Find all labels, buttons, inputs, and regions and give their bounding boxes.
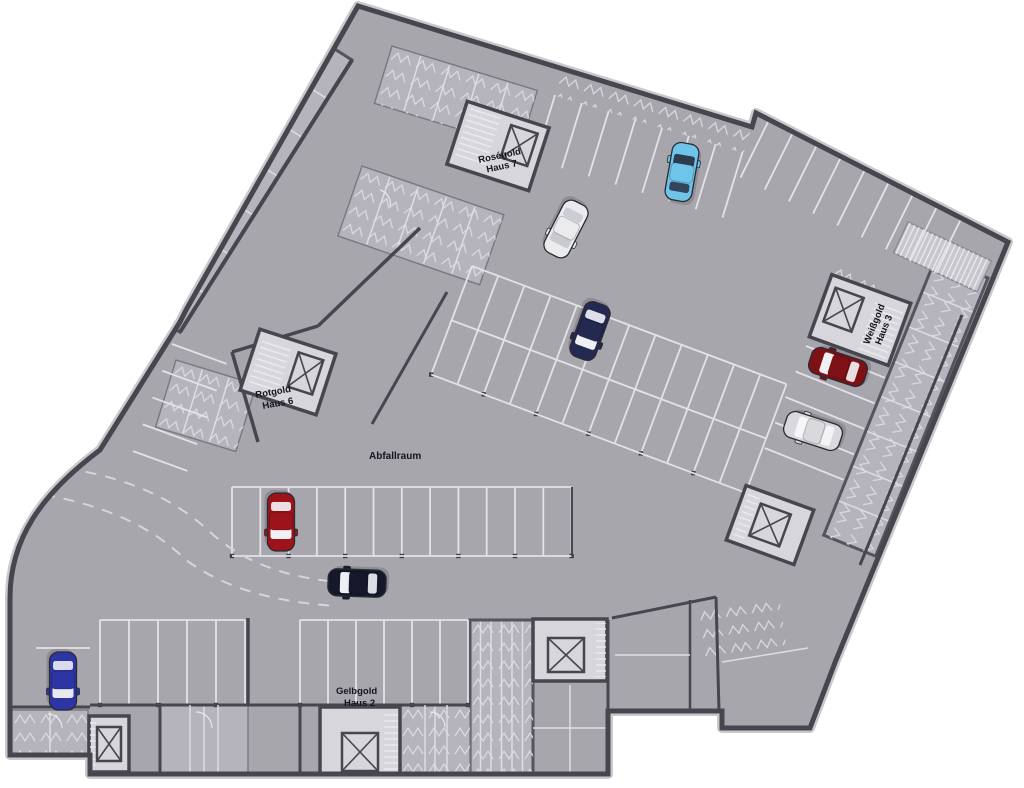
- elevator-icon: [97, 727, 121, 761]
- stairwell-core: [89, 716, 129, 772]
- stairwell-core-gelbgold: [320, 707, 400, 777]
- black-car: [327, 565, 389, 600]
- blue-car: [47, 649, 80, 710]
- storage-area: [12, 710, 88, 754]
- stairs-icon: [384, 712, 398, 774]
- label-abfallraum: Abfallraum: [369, 451, 421, 462]
- storage-area: [470, 620, 533, 775]
- red-car: [265, 490, 298, 551]
- garage-floor-plan-page: Roségold Haus 7 Weißgold Haus 3 Rotgold …: [0, 0, 1024, 788]
- storage-area: [160, 705, 248, 775]
- stairs-icon: [596, 623, 606, 677]
- label-gelbgold-line2: Haus 2: [344, 698, 375, 709]
- garage-floor-plan: Roségold Haus 7 Weißgold Haus 3 Rotgold …: [0, 0, 1024, 788]
- car-rear-window: [271, 502, 291, 511]
- storage-area: [400, 705, 470, 775]
- stairwell-core: [533, 619, 607, 681]
- car-rear-window: [368, 573, 378, 593]
- label-gelbgold-line1: Gelbgold: [336, 686, 377, 697]
- car-rear-window: [53, 661, 73, 670]
- elevator-icon: [548, 638, 584, 672]
- elevator-icon: [342, 733, 378, 771]
